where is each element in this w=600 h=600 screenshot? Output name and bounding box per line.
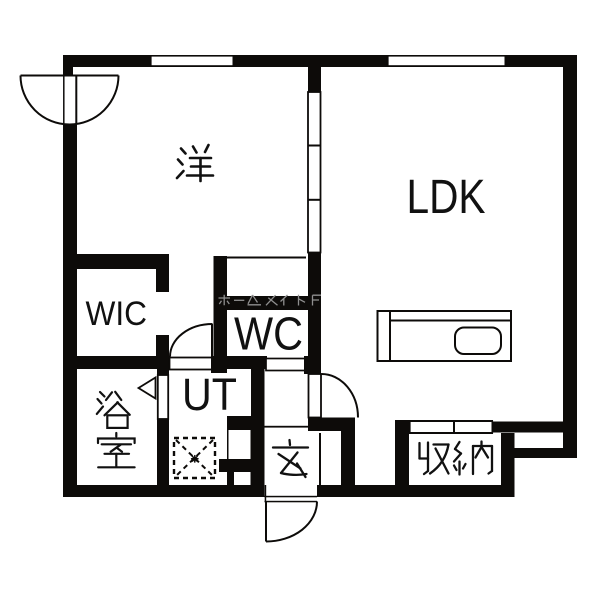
svg-text:WIC: WIC bbox=[86, 295, 148, 333]
svg-text:UT: UT bbox=[182, 369, 237, 420]
svg-text:LDK: LDK bbox=[407, 171, 486, 224]
svg-text:WC: WC bbox=[234, 308, 303, 360]
